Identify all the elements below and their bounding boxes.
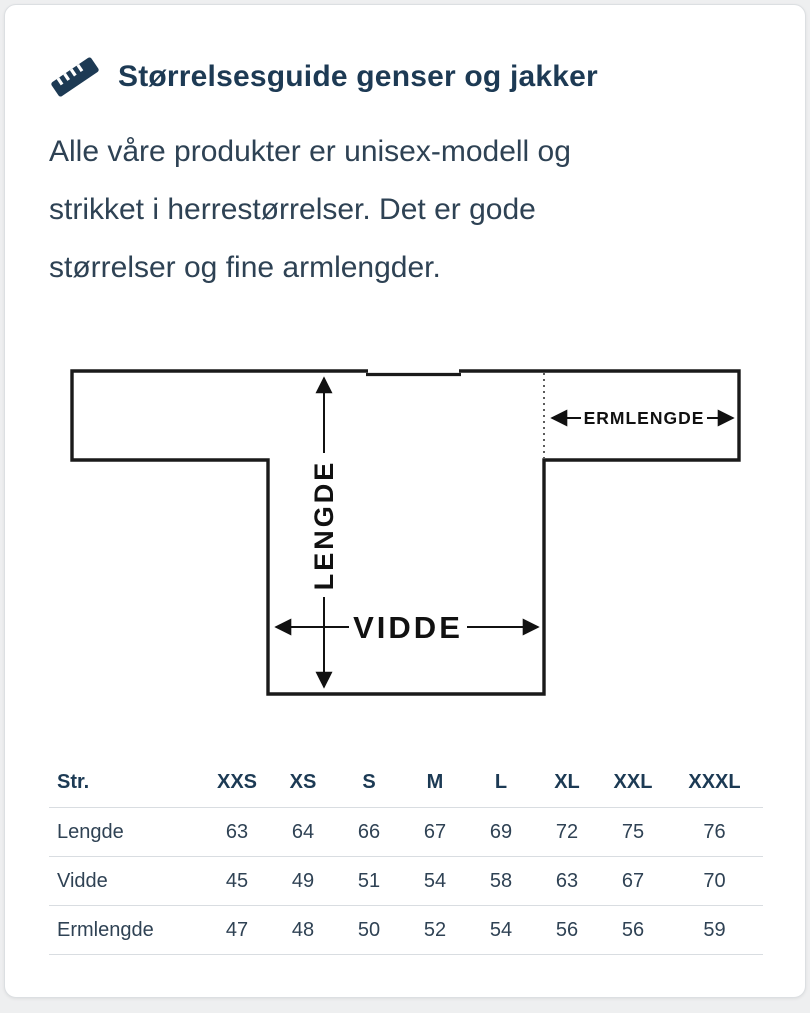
column-header-xxs: XXS — [204, 757, 270, 808]
table-cell: 56 — [600, 906, 666, 955]
page-background: Størrelsesguide genser og jakker Alle vå… — [0, 0, 810, 1013]
column-header-xl: XL — [534, 757, 600, 808]
table-cell: 48 — [270, 906, 336, 955]
table-header-row: Str. XXS XS S M L XL XXL XXXL — [49, 757, 763, 808]
row-label: Ermlengde — [49, 906, 204, 955]
table-cell: 66 — [336, 808, 402, 857]
table-cell: 67 — [600, 857, 666, 906]
table-cell: 70 — [666, 857, 763, 906]
size-table: Str. XXS XS S M L XL XXL XXXL Lengde 63 … — [49, 757, 763, 955]
table-cell: 49 — [270, 857, 336, 906]
row-label: Lengde — [49, 808, 204, 857]
column-header-xxxl: XXXL — [666, 757, 763, 808]
vidde-label: VIDDE — [353, 610, 463, 645]
table-cell: 58 — [468, 857, 534, 906]
table-cell: 51 — [336, 857, 402, 906]
page-title: Størrelsesguide genser og jakker — [118, 55, 598, 99]
table-cell: 54 — [468, 906, 534, 955]
title-row: Størrelsesguide genser og jakker — [49, 55, 598, 99]
lengde-label: LENGDE — [309, 460, 339, 591]
table-cell: 64 — [270, 808, 336, 857]
ermlengde-label: ERMLENGDE — [584, 408, 705, 428]
table-cell: 76 — [666, 808, 763, 857]
column-header-m: M — [402, 757, 468, 808]
table-cell: 47 — [204, 906, 270, 955]
table-cell: 52 — [402, 906, 468, 955]
row-label: Vidde — [49, 857, 204, 906]
table-cell: 50 — [336, 906, 402, 955]
table-row-vidde: Vidde 45 49 51 54 58 63 67 70 — [49, 857, 763, 906]
table-cell: 63 — [534, 857, 600, 906]
intro-line: Alle våre produkter er unisex-modell og — [49, 123, 769, 181]
size-guide-card: Størrelsesguide genser og jakker Alle vå… — [4, 4, 806, 998]
table-row-lengde: Lengde 63 64 66 67 69 72 75 76 — [49, 808, 763, 857]
table-cell: 69 — [468, 808, 534, 857]
column-header-str: Str. — [49, 757, 204, 808]
sweater-diagram: LENGDE VIDDE ERMLENGDE — [5, 341, 805, 721]
table-cell: 67 — [402, 808, 468, 857]
intro-line: strikket i herrestørrelser. Det er gode — [49, 181, 769, 239]
column-header-l: L — [468, 757, 534, 808]
table-cell: 54 — [402, 857, 468, 906]
intro-paragraph: Alle våre produkter er unisex-modell og … — [49, 123, 769, 297]
column-header-s: S — [336, 757, 402, 808]
table-cell: 56 — [534, 906, 600, 955]
table-cell: 72 — [534, 808, 600, 857]
column-header-xs: XS — [270, 757, 336, 808]
table-cell: 59 — [666, 906, 763, 955]
ruler-icon — [49, 55, 101, 99]
column-header-xxl: XXL — [600, 757, 666, 808]
table-cell: 63 — [204, 808, 270, 857]
table-cell: 75 — [600, 808, 666, 857]
table-row-ermlengde: Ermlengde 47 48 50 52 54 56 56 59 — [49, 906, 763, 955]
intro-line: størrelser og fine armlengder. — [49, 239, 769, 297]
table-cell: 45 — [204, 857, 270, 906]
